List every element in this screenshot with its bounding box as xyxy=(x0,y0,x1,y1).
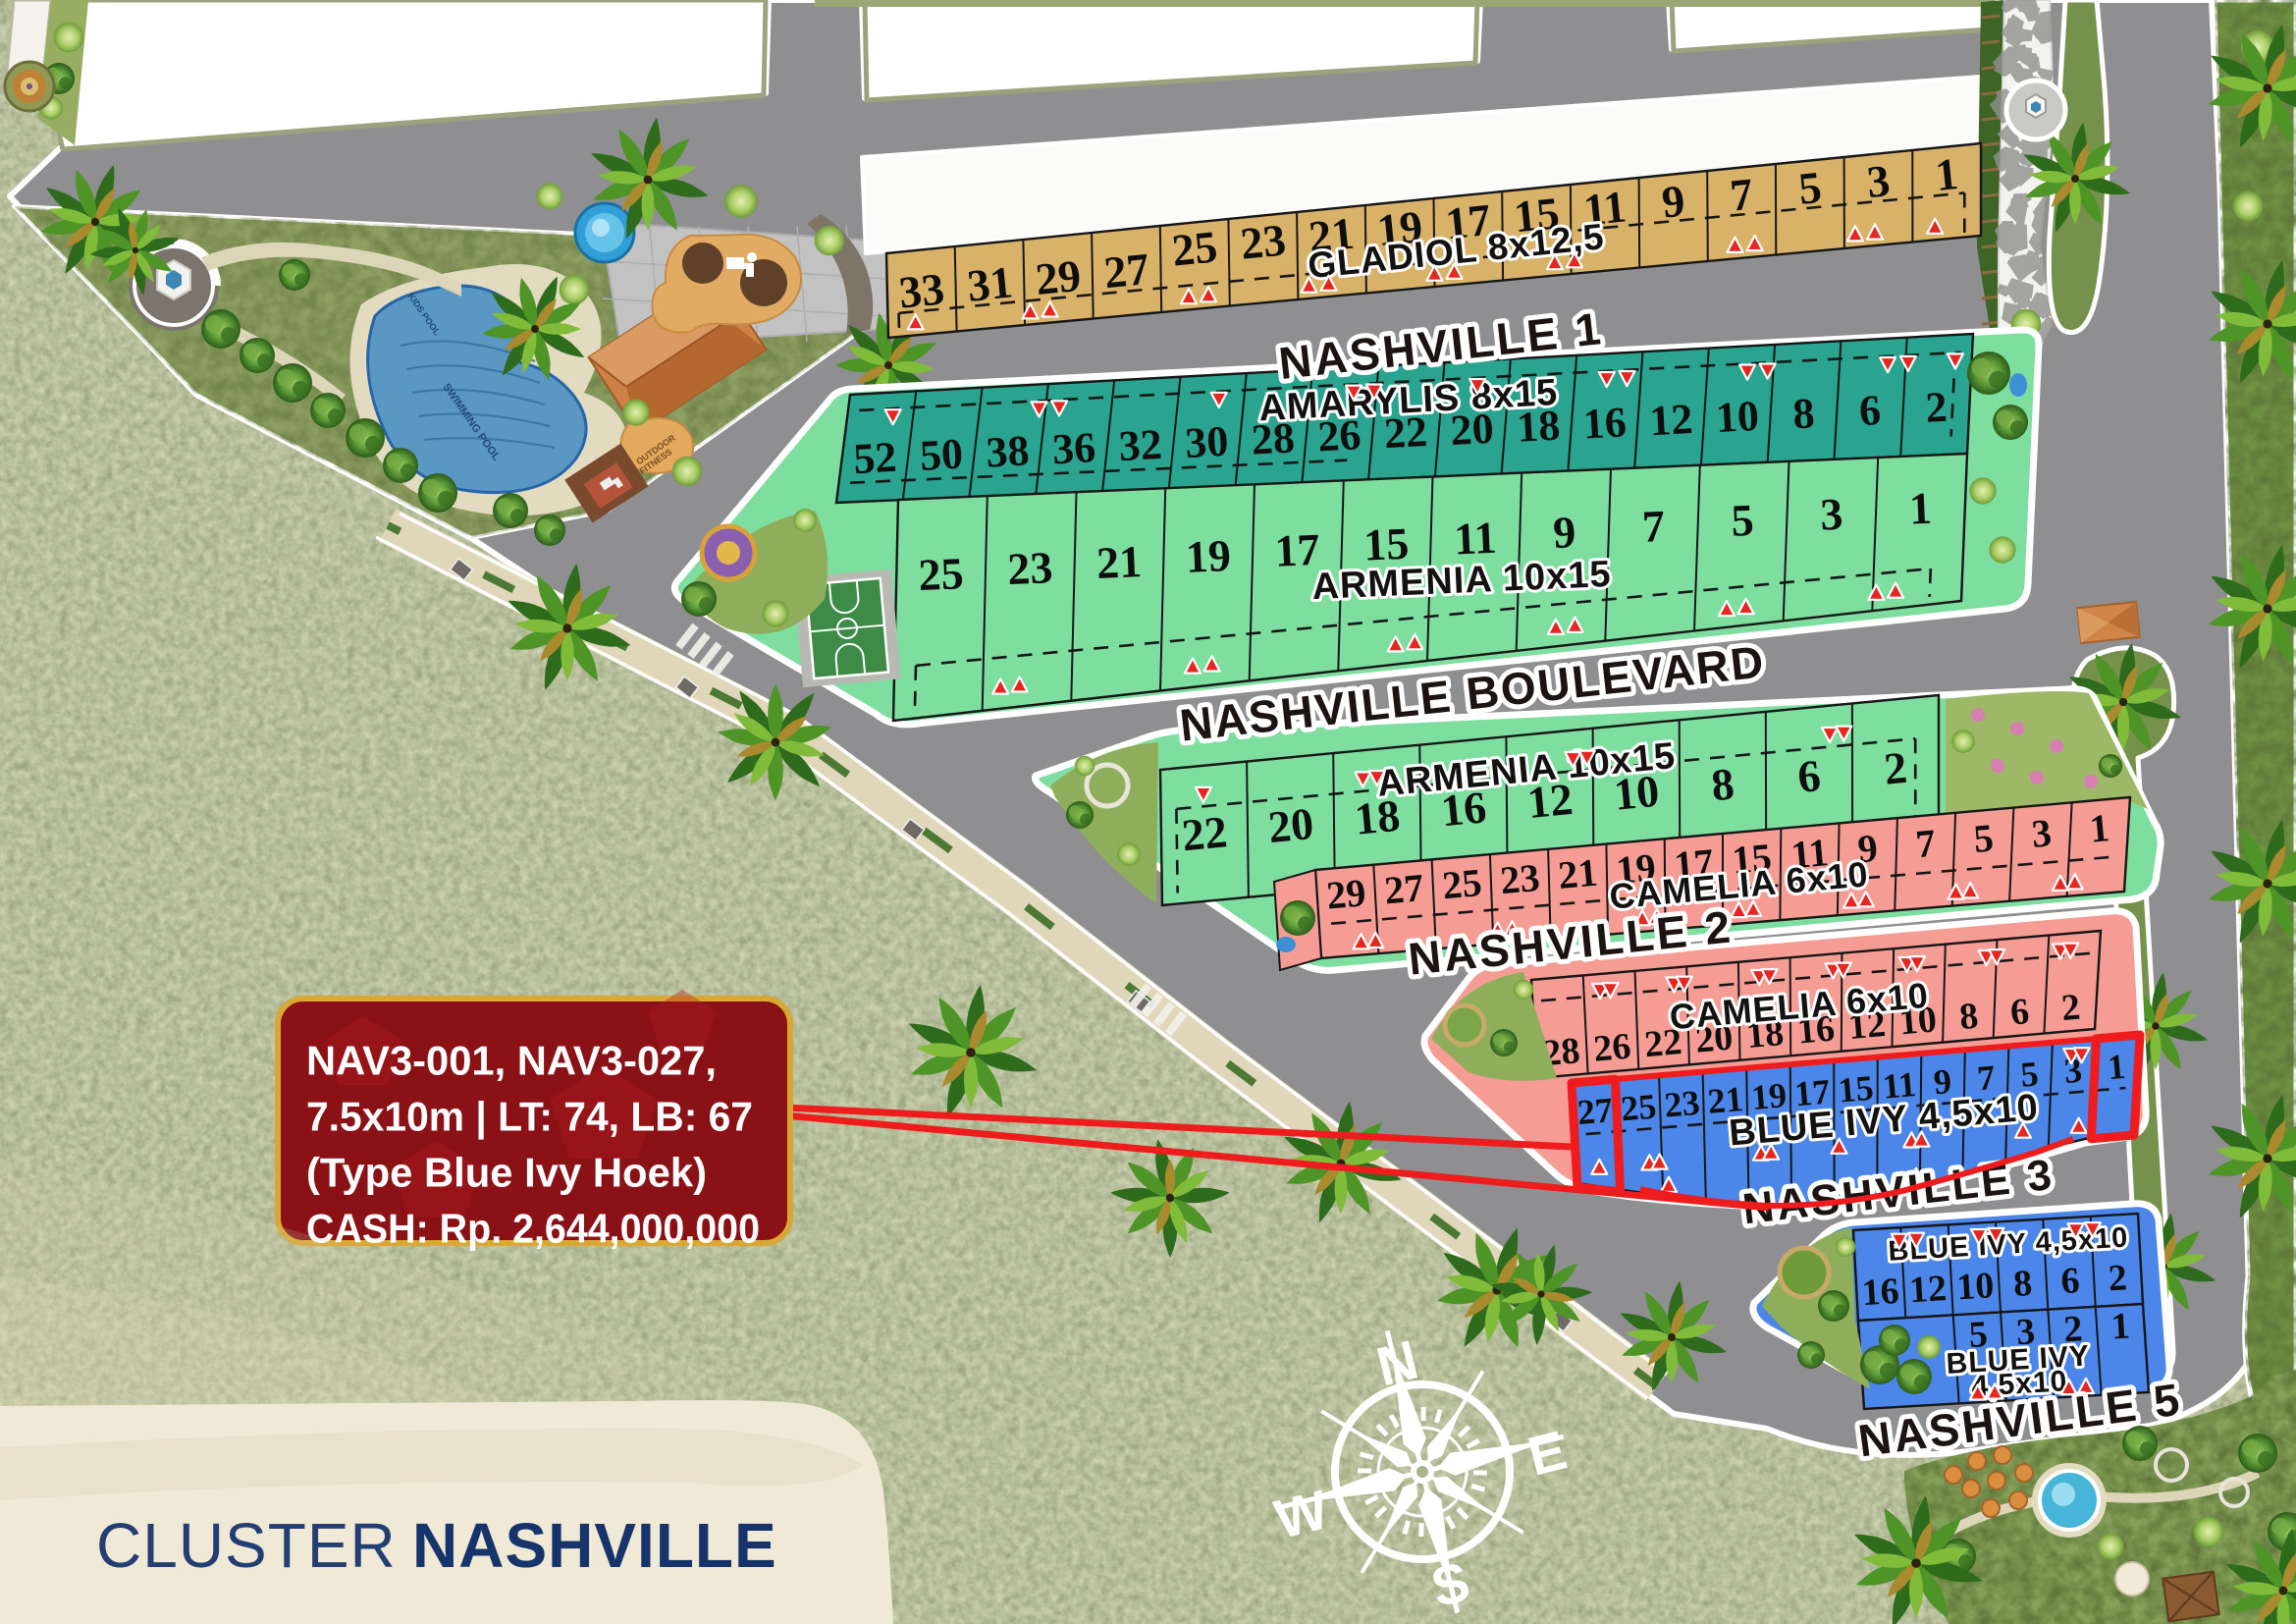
svg-text:6: 6 xyxy=(1795,750,1823,802)
svg-text:CASH: Rp. 2,644,000,000: CASH: Rp. 2,644,000,000 xyxy=(306,1206,760,1252)
svg-text:5: 5 xyxy=(1731,495,1755,546)
svg-text:NASHVILLE: NASHVILLE xyxy=(412,1510,777,1581)
svg-text:CLUSTER: CLUSTER xyxy=(96,1510,397,1581)
svg-text:32: 32 xyxy=(1117,420,1163,470)
svg-text:6: 6 xyxy=(1858,386,1883,435)
svg-text:36: 36 xyxy=(1051,423,1097,473)
svg-text:7.5x10m | LT: 74, LB: 67: 7.5x10m | LT: 74, LB: 67 xyxy=(306,1094,753,1141)
svg-text:9: 9 xyxy=(1552,507,1576,558)
svg-text:38: 38 xyxy=(985,426,1031,476)
svg-text:25: 25 xyxy=(1170,221,1220,275)
svg-text:22: 22 xyxy=(1180,806,1230,860)
svg-text:25: 25 xyxy=(918,548,965,600)
svg-text:19: 19 xyxy=(1185,530,1232,582)
svg-text:12: 12 xyxy=(1648,395,1694,445)
svg-text:2: 2 xyxy=(2059,987,2082,1029)
svg-text:2: 2 xyxy=(1882,742,1909,794)
svg-text:NAV3-001, NAV3-027,: NAV3-001, NAV3-027, xyxy=(306,1038,717,1084)
svg-text:26: 26 xyxy=(1592,1026,1632,1070)
svg-text:29: 29 xyxy=(1034,250,1084,304)
svg-text:2: 2 xyxy=(1924,383,1949,432)
svg-text:8: 8 xyxy=(2012,1263,2033,1305)
svg-text:52: 52 xyxy=(852,433,898,483)
svg-text:6: 6 xyxy=(2008,991,2031,1033)
svg-text:1: 1 xyxy=(2106,1047,2126,1087)
svg-text:29: 29 xyxy=(1324,870,1367,917)
svg-text:5: 5 xyxy=(1972,815,1996,861)
svg-text:30: 30 xyxy=(1184,417,1230,467)
svg-text:2: 2 xyxy=(2108,1257,2128,1299)
svg-text:10: 10 xyxy=(1955,1265,1995,1308)
svg-text:27: 27 xyxy=(1575,1090,1614,1132)
svg-text:20: 20 xyxy=(1266,798,1316,852)
svg-text:21: 21 xyxy=(1556,850,1599,897)
svg-text:23: 23 xyxy=(1498,855,1541,902)
svg-text:(Type Blue Ivy Hoek): (Type Blue Ivy Hoek) xyxy=(306,1150,707,1196)
svg-text:33: 33 xyxy=(896,263,946,317)
svg-text:21: 21 xyxy=(1095,536,1143,588)
svg-text:50: 50 xyxy=(919,430,965,480)
svg-text:7: 7 xyxy=(1641,501,1666,552)
svg-text:7: 7 xyxy=(1914,821,1938,867)
svg-text:27: 27 xyxy=(1101,244,1151,298)
svg-text:3: 3 xyxy=(1819,489,1843,540)
svg-text:23: 23 xyxy=(1238,214,1288,268)
svg-text:10: 10 xyxy=(1715,392,1761,442)
svg-text:1: 1 xyxy=(2110,1305,2131,1347)
svg-text:8: 8 xyxy=(1709,758,1736,810)
svg-text:1: 1 xyxy=(1908,483,1933,534)
svg-text:16: 16 xyxy=(1581,398,1628,448)
svg-text:25: 25 xyxy=(1620,1086,1658,1128)
svg-text:23: 23 xyxy=(1663,1083,1701,1125)
svg-text:8: 8 xyxy=(1791,389,1816,438)
svg-text:6: 6 xyxy=(2059,1260,2080,1302)
svg-text:1: 1 xyxy=(2088,805,2111,851)
svg-text:3: 3 xyxy=(2030,810,2054,856)
svg-text:23: 23 xyxy=(1006,542,1053,594)
svg-text:16: 16 xyxy=(1861,1271,1900,1314)
svg-text:25: 25 xyxy=(1440,860,1483,907)
svg-text:8: 8 xyxy=(1957,996,1980,1038)
svg-text:12: 12 xyxy=(1908,1268,1948,1311)
svg-text:11: 11 xyxy=(1453,513,1498,565)
svg-text:27: 27 xyxy=(1382,865,1425,912)
